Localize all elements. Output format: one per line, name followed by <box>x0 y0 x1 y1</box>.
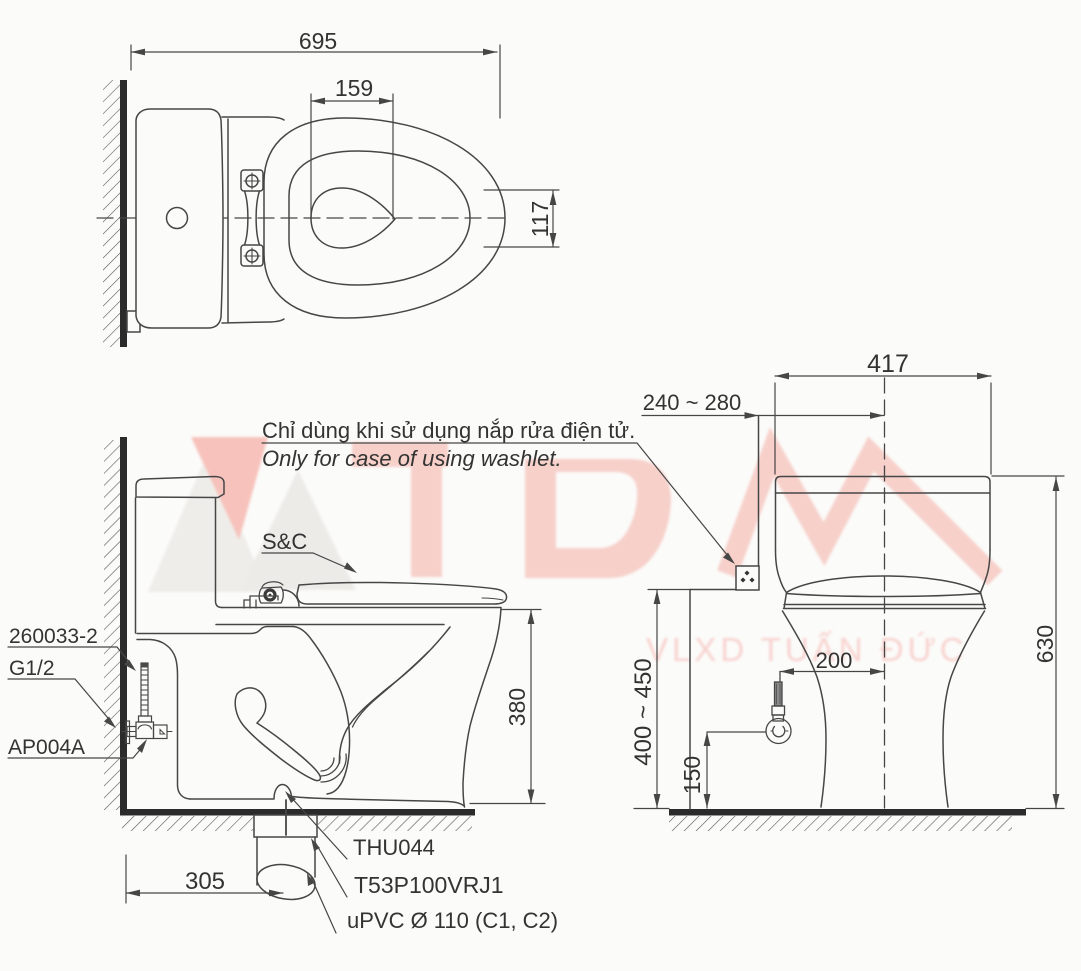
svg-text:150: 150 <box>679 756 705 794</box>
svg-text:S&C: S&C <box>262 529 307 554</box>
svg-text:Only for case of using washlet: Only for case of using washlet. <box>262 446 562 471</box>
svg-text:159: 159 <box>335 75 373 101</box>
svg-text:240 ~ 280: 240 ~ 280 <box>643 390 741 415</box>
svg-text:T53P100VRJ1: T53P100VRJ1 <box>354 872 504 898</box>
svg-text:uPVC Ø 110 (C1, C2): uPVC Ø 110 (C1, C2) <box>347 908 558 933</box>
svg-text:417: 417 <box>867 350 909 378</box>
svg-text:695: 695 <box>299 28 337 54</box>
svg-text:200: 200 <box>816 648 853 673</box>
svg-text:THU044: THU044 <box>353 835 435 860</box>
svg-text:Chỉ dùng khi sử dụng nắp rửa đ: Chỉ dùng khi sử dụng nắp rửa điện tử. <box>262 418 635 443</box>
svg-text:117: 117 <box>527 201 553 238</box>
svg-text:630: 630 <box>1032 625 1058 663</box>
svg-text:400 ~ 450: 400 ~ 450 <box>630 658 657 765</box>
svg-text:VLXD TUẤN ĐỨC: VLXD TUẤN ĐỨC <box>646 631 968 668</box>
svg-text:260033-2: 260033-2 <box>9 625 98 648</box>
svg-text:G1/2: G1/2 <box>9 657 55 680</box>
svg-text:305: 305 <box>185 868 225 895</box>
svg-text:380: 380 <box>504 688 530 726</box>
svg-text:AP004A: AP004A <box>8 736 85 759</box>
